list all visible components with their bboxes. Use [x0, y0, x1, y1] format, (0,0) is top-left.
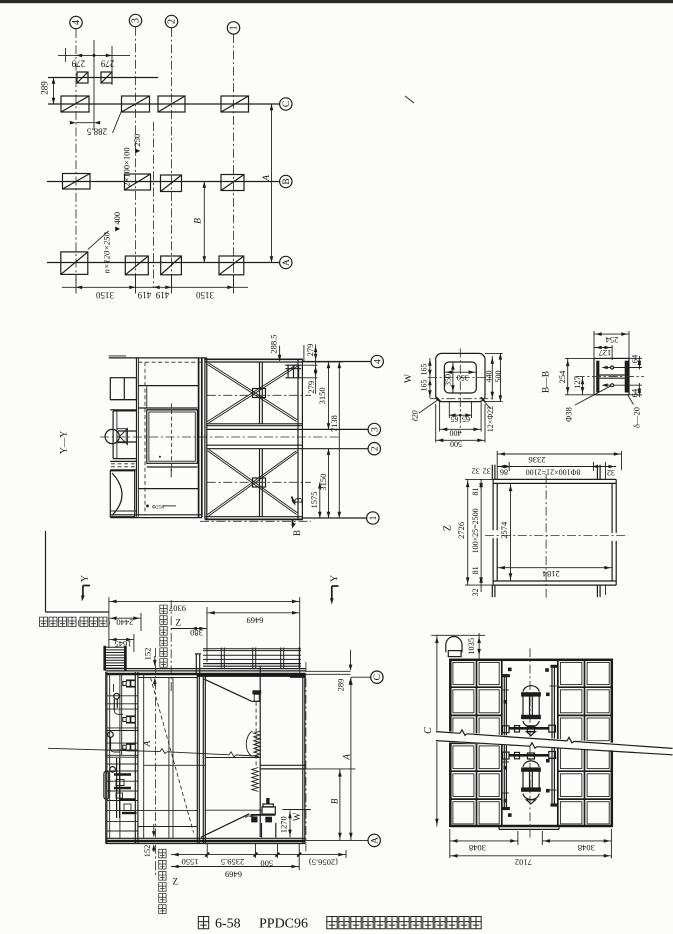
svg-text:3150: 3150: [317, 387, 327, 404]
svg-text:419: 419: [155, 290, 169, 300]
svg-text:279: 279: [71, 59, 85, 69]
svg-text:3: 3: [371, 427, 381, 432]
svg-text:6469: 6469: [225, 869, 242, 879]
svg-text:440: 440: [484, 371, 493, 383]
svg-text:7138: 7138: [329, 415, 339, 432]
svg-text:Y: Y: [80, 575, 90, 582]
svg-text:350: 350: [443, 374, 452, 386]
svg-text:4: 4: [71, 20, 82, 25]
svg-text:81: 81: [471, 566, 480, 574]
svg-text:279: 279: [305, 344, 315, 357]
svg-text:65: 65: [462, 414, 470, 423]
svg-text:2184: 2184: [542, 569, 560, 579]
svg-text:32: 32: [483, 467, 491, 476]
svg-text:500: 500: [450, 439, 462, 448]
svg-text:B: B: [329, 798, 339, 804]
svg-text:289: 289: [40, 81, 50, 95]
svg-text:C: C: [282, 101, 292, 107]
svg-text:2: 2: [167, 19, 178, 24]
svg-text:Z: Z: [443, 525, 454, 531]
svg-text:A: A: [142, 740, 152, 747]
svg-text:127: 127: [599, 348, 612, 358]
svg-text:3150: 3150: [196, 290, 215, 300]
svg-text:32: 32: [471, 588, 480, 596]
svg-text:C: C: [373, 674, 383, 680]
svg-text:B: B: [293, 497, 303, 503]
svg-text:B: B: [194, 218, 204, 224]
svg-text:2359.5: 2359.5: [221, 857, 244, 867]
svg-text:Z: Z: [176, 617, 182, 627]
svg-text:A: A: [341, 754, 351, 761]
svg-text:2440: 2440: [116, 618, 133, 628]
svg-text:2×100×100: 2×100×100: [121, 147, 131, 186]
svg-text:500: 500: [260, 859, 273, 869]
svg-text:Z: Z: [172, 877, 178, 887]
svg-text:419: 419: [137, 290, 151, 300]
svg-text:n×120×250: n×120×250: [101, 231, 111, 273]
svg-text:86: 86: [500, 468, 508, 477]
svg-text:2: 2: [371, 446, 381, 451]
svg-text:254: 254: [605, 335, 619, 345]
svg-text:380: 380: [190, 628, 203, 638]
svg-text:2336: 2336: [529, 455, 546, 465]
svg-text:288.5: 288.5: [269, 334, 279, 353]
svg-text:2574: 2574: [499, 521, 509, 539]
svg-text:3048: 3048: [578, 843, 595, 853]
svg-text:Y: Y: [330, 575, 340, 582]
svg-text:Φ256: Φ256: [152, 504, 165, 510]
svg-text:127: 127: [572, 376, 582, 389]
svg-text:1: 1: [369, 515, 379, 520]
svg-text:Y—Y: Y—Y: [59, 431, 69, 454]
svg-text:A: A: [370, 837, 380, 844]
svg-text:W: W: [292, 812, 302, 821]
svg-text:100×25=2500: 100×25=2500: [471, 508, 480, 553]
svg-text:4: 4: [373, 359, 383, 364]
svg-text:254: 254: [557, 370, 567, 384]
svg-text:6-58: 6-58: [215, 917, 241, 932]
svg-text:279: 279: [100, 59, 114, 69]
svg-text:12×Φ22: 12×Φ22: [486, 406, 495, 432]
svg-text:B: B: [282, 178, 292, 184]
svg-text:3150: 3150: [96, 290, 115, 300]
svg-text:▼250: ▼250: [132, 134, 142, 155]
svg-text:7102: 7102: [515, 857, 532, 867]
svg-text:B—B: B—B: [542, 371, 552, 393]
svg-text:500: 500: [494, 371, 503, 383]
svg-text:ℓ20: ℓ20: [411, 410, 420, 421]
svg-text:1: 1: [229, 25, 240, 30]
svg-text:165: 165: [420, 380, 429, 392]
svg-text:W: W: [404, 374, 414, 383]
svg-text:6469: 6469: [247, 616, 264, 626]
svg-text:▼400: ▼400: [112, 212, 122, 233]
svg-text:1035: 1035: [466, 638, 476, 655]
svg-text:1575: 1575: [309, 492, 319, 509]
svg-text:3: 3: [131, 18, 142, 23]
svg-text:32: 32: [472, 467, 480, 476]
svg-text:165: 165: [420, 364, 429, 376]
svg-text:(2056.5): (2056.5): [309, 858, 338, 868]
svg-text:279: 279: [306, 381, 316, 394]
svg-text:152: 152: [143, 648, 153, 661]
svg-text:C: C: [423, 727, 434, 734]
svg-text:350: 350: [457, 373, 469, 382]
svg-text:δ—20: δ—20: [632, 407, 642, 428]
svg-text:A: A: [282, 259, 292, 266]
svg-text:1550: 1550: [182, 857, 199, 867]
svg-text:64: 64: [629, 388, 639, 397]
svg-text:PPDC96: PPDC96: [259, 917, 308, 932]
svg-text:65: 65: [451, 414, 459, 423]
svg-text:152: 152: [142, 845, 152, 858]
svg-text:8Φ100×21=2100: 8Φ100×21=2100: [526, 468, 581, 477]
svg-text:288.5: 288.5: [86, 127, 107, 137]
svg-text:B: B: [292, 530, 302, 536]
svg-text:Φ38: Φ38: [564, 407, 574, 422]
svg-text:81: 81: [471, 488, 480, 496]
svg-text:400: 400: [450, 428, 462, 437]
svg-text:3048: 3048: [469, 843, 486, 853]
svg-text:32: 32: [607, 468, 615, 477]
svg-text:289: 289: [336, 679, 346, 692]
svg-text:2726: 2726: [456, 522, 466, 539]
svg-text:1270: 1270: [279, 816, 289, 833]
svg-text:A: A: [262, 175, 272, 182]
